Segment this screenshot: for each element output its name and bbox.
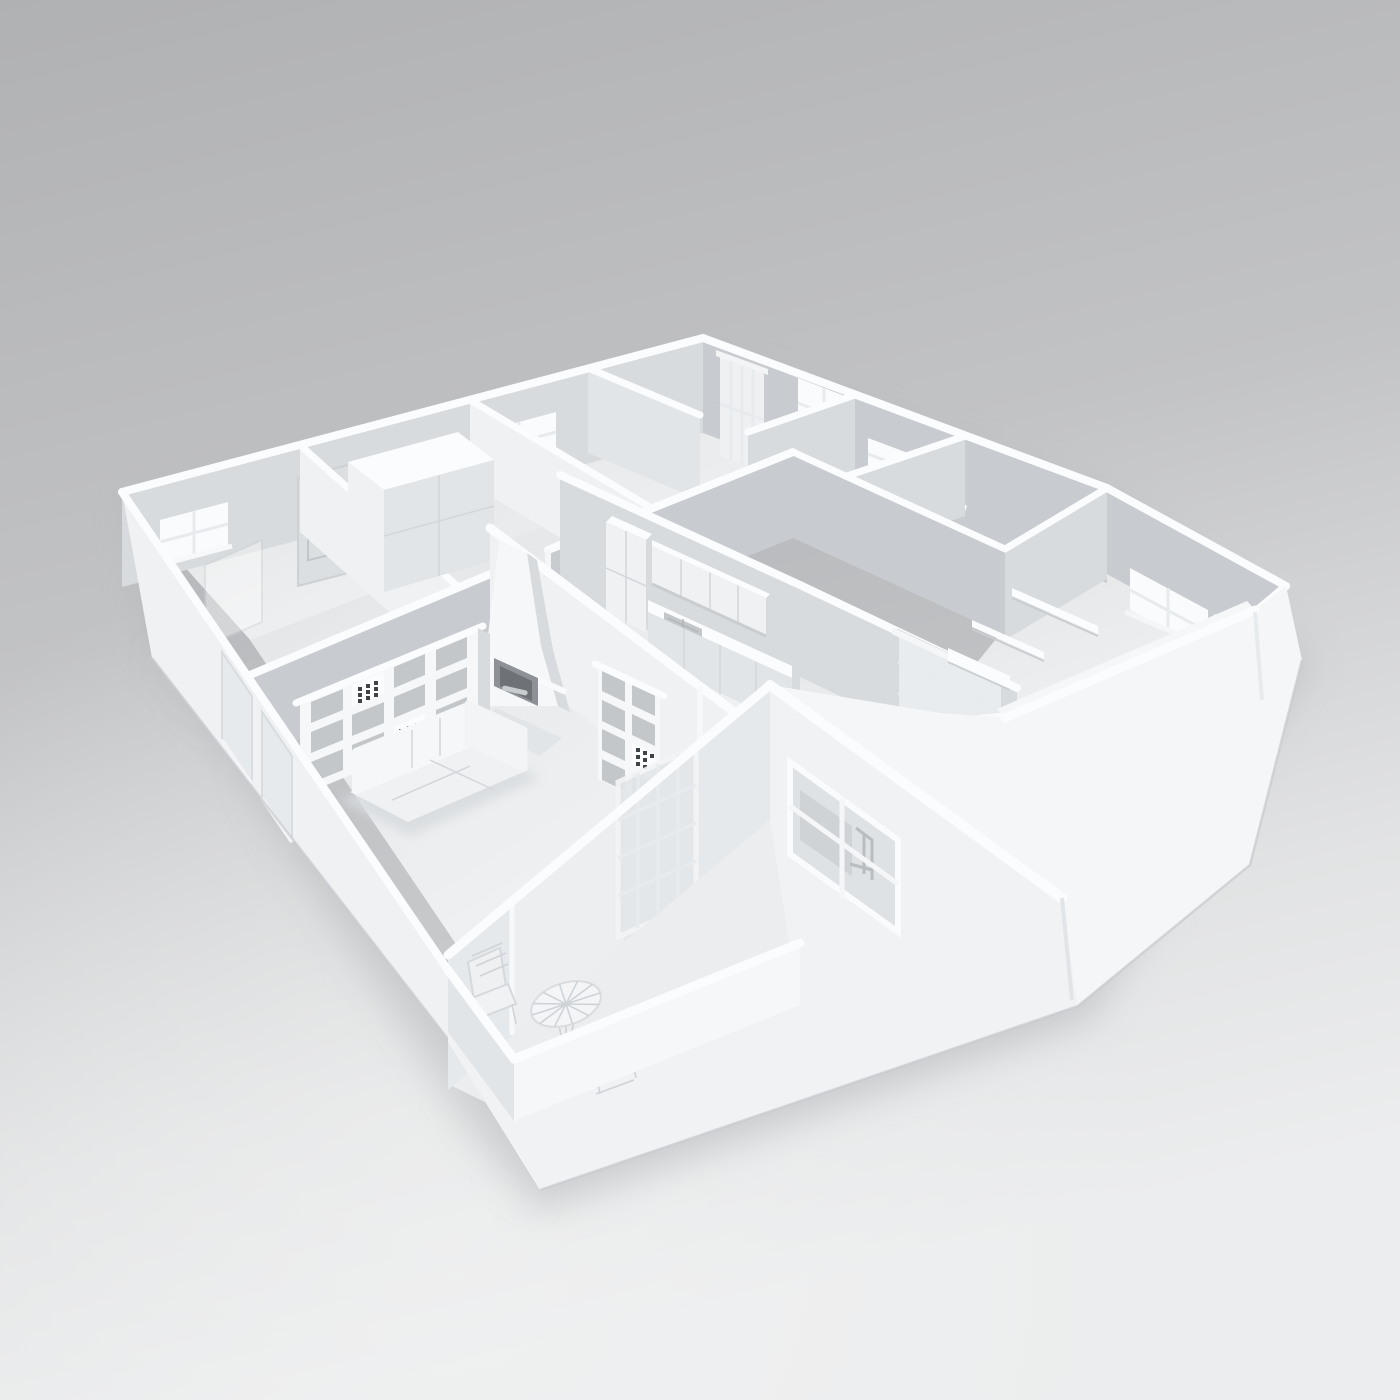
render-viewport: [0, 0, 1400, 1400]
apartment-model-render: [0, 0, 1400, 1400]
